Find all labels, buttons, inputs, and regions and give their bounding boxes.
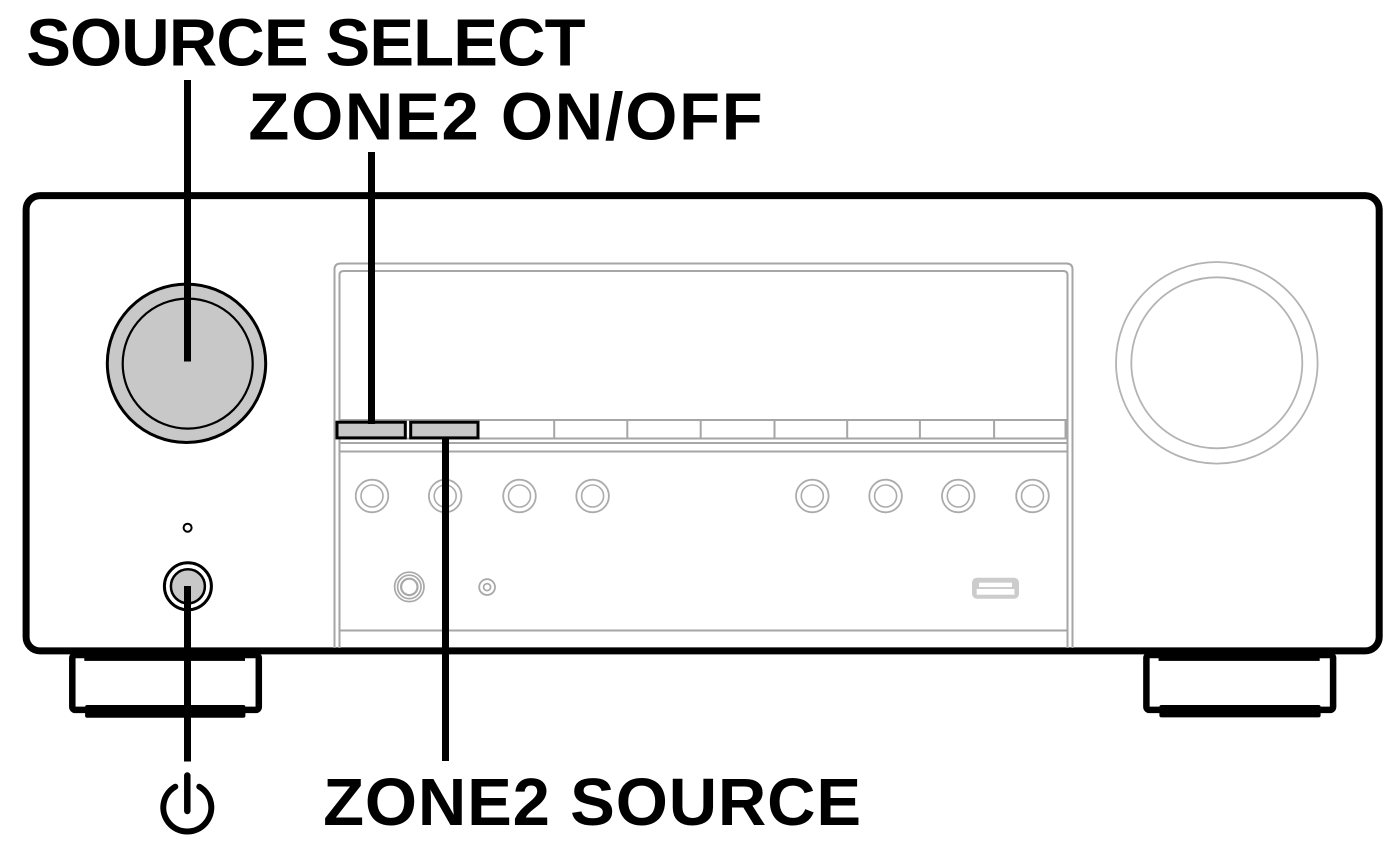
svg-text:ZONE2 SOURCE: ZONE2 SOURCE (323, 765, 862, 840)
svg-text:ZONE2 ON/OFF: ZONE2 ON/OFF (248, 80, 764, 155)
svg-text:SOURCE SELECT: SOURCE SELECT (26, 6, 585, 81)
